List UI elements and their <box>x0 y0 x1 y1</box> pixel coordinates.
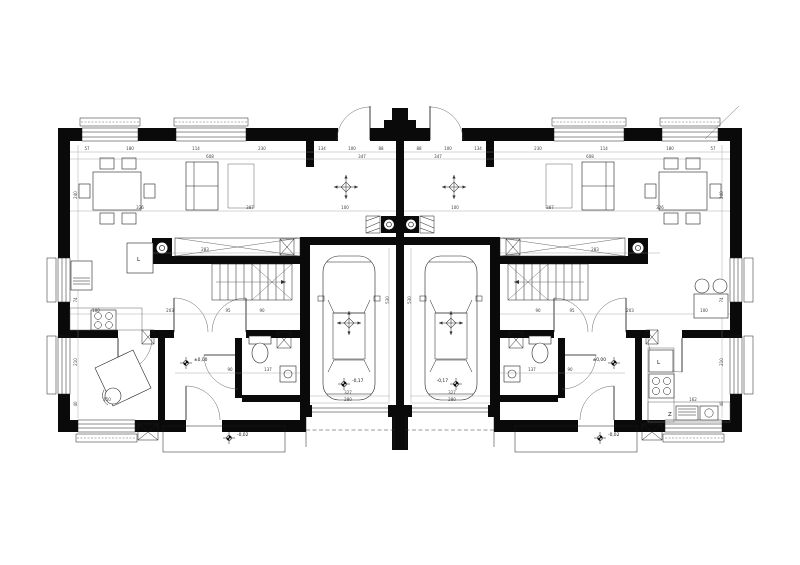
dimension-label: 283 <box>591 247 599 252</box>
dimension-label: 162 <box>689 397 697 402</box>
dimension-label: 240 <box>719 191 724 199</box>
dimension-label: 608 <box>586 154 594 159</box>
dimension-label: 40 <box>719 401 724 407</box>
dimension-label: 100 <box>348 146 356 151</box>
dimension-label: 326 <box>136 205 144 210</box>
dimension-label: 137 <box>264 367 272 372</box>
dimension-label: 180 <box>126 146 134 151</box>
dimension-label: 387 <box>546 205 554 210</box>
dimension-label: 347 <box>358 154 366 159</box>
dimension-label: 90 <box>227 367 233 372</box>
dimension-label: 100 <box>451 205 459 210</box>
level-marker-text: -0,02 <box>608 432 620 438</box>
wc-door <box>204 355 238 389</box>
dimension-label: 150 <box>103 397 111 402</box>
dimension-label: 100 <box>92 308 100 313</box>
dimension-label: 114 <box>600 146 608 151</box>
appliance-label-right: Z <box>668 412 672 418</box>
dimension-label: 74 <box>73 297 78 303</box>
dimension-label: 210 <box>719 358 724 366</box>
dimension-label: 100 <box>444 146 452 151</box>
right-kitchen: L Z <box>648 348 730 422</box>
dimension-label: 203 <box>166 308 174 313</box>
dimension-label: 327 <box>344 390 352 395</box>
boiler-unit <box>366 216 397 233</box>
dimension-label: 230 <box>258 146 266 151</box>
dimension-label: 210 <box>73 358 78 366</box>
kitchen-island <box>152 238 300 258</box>
dimension-label: 530 <box>385 296 390 304</box>
window-left-2 <box>47 336 70 394</box>
level-marker-text: ±0,00 <box>593 357 607 363</box>
staircase <box>212 264 292 300</box>
dimension-label: 530 <box>407 296 412 304</box>
window-bottom <box>76 420 137 442</box>
level-marker-text: -0,17 <box>352 378 364 384</box>
dimension-label: 326 <box>656 205 664 210</box>
window-left-1 <box>47 258 70 302</box>
ceiling-symbol-hall <box>334 175 358 199</box>
hall-door-1 <box>174 298 208 332</box>
level-marker-text: ±0,00 <box>194 357 208 363</box>
dimension-label: 90 <box>567 367 573 372</box>
dimension-label: 347 <box>434 154 442 159</box>
dimension-label: 95 <box>225 308 231 313</box>
dimension-label: 90 <box>535 308 541 313</box>
dimension-label: 134 <box>474 146 482 151</box>
level-marker: -0,02 <box>594 432 620 444</box>
hall-door-2 <box>212 298 246 332</box>
dimension-label: 283 <box>201 247 209 252</box>
dimension-label: 327 <box>448 390 456 395</box>
dimension-label: 57 <box>84 146 90 151</box>
garage-door <box>306 408 394 447</box>
window-top-1 <box>80 118 140 141</box>
window-top-2 <box>174 118 248 141</box>
dimension-label: 137 <box>528 367 536 372</box>
dimension-label: 134 <box>318 146 326 151</box>
dimension-label: 100 <box>341 205 349 210</box>
dimension-label: 180 <box>666 146 674 151</box>
dimension-label: 74 <box>719 297 724 303</box>
dimension-label: 387 <box>246 205 254 210</box>
dimension-label: 95 <box>569 308 575 313</box>
dimension-label: 88 <box>416 146 422 151</box>
level-marker-text: -0,17 <box>437 378 449 384</box>
dimension-label: 88 <box>378 146 384 151</box>
dimension-label: 40 <box>73 401 78 407</box>
wc-fixtures <box>249 336 296 382</box>
floor-plan-page: L L Z 5718011423013410088881001342301141… <box>0 0 800 565</box>
dimension-label: 230 <box>534 146 542 151</box>
level-marker-text: -0,02 <box>237 432 249 438</box>
dimension-label: 114 <box>192 146 200 151</box>
dimension-label: 240 <box>73 191 78 199</box>
left-kitchen: L <box>70 243 153 330</box>
entrance-door-top <box>337 106 370 140</box>
dimension-label: 203 <box>626 308 634 313</box>
dimension-label: 90 <box>259 308 265 313</box>
dimension-label: 57 <box>710 146 716 151</box>
dimension-label: 608 <box>206 154 214 159</box>
level-marker: ±0,00 <box>180 357 208 369</box>
level-marker: -0,02 <box>223 432 249 444</box>
floor-plan-svg: L L Z 5718011423013410088881001342301141… <box>0 0 800 565</box>
dimension-label: 280 <box>448 397 456 402</box>
entry-door-bottom <box>186 386 220 420</box>
dimension-label: 280 <box>344 397 352 402</box>
level-marker: ±0,00 <box>593 357 620 369</box>
dimension-label: 100 <box>700 308 708 313</box>
living-furniture <box>79 158 254 224</box>
